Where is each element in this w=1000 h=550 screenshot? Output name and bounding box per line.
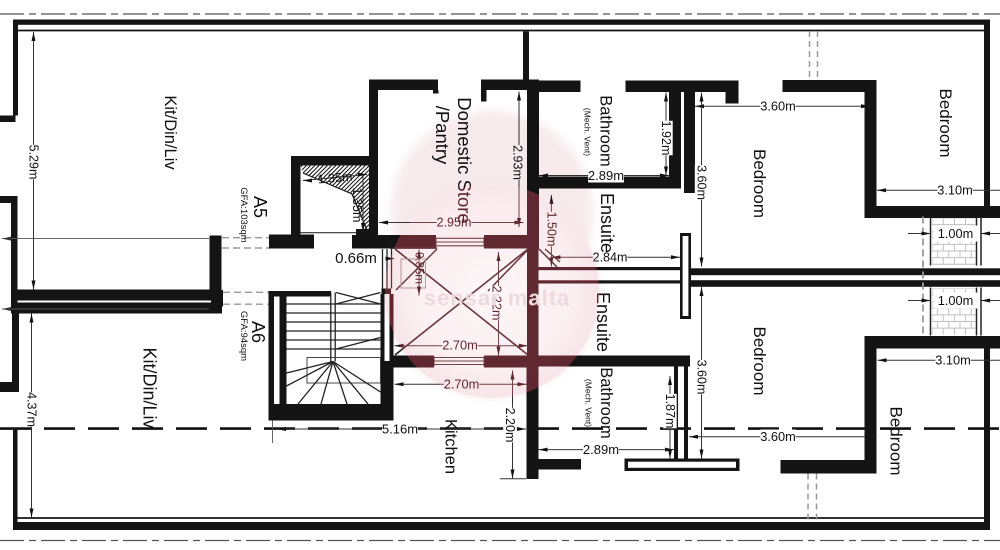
svg-text:1.00m: 1.00m	[938, 293, 974, 308]
svg-text:A6: A6	[248, 321, 268, 343]
svg-text:Kitchen: Kitchen	[442, 419, 460, 474]
svg-text:Bedroom: Bedroom	[750, 327, 769, 396]
svg-text:5.16m: 5.16m	[382, 421, 418, 436]
svg-text:Bedroom: Bedroom	[887, 407, 906, 476]
svg-text:2.89m: 2.89m	[583, 442, 619, 457]
svg-text:Kit/Din/Liv: Kit/Din/Liv	[161, 95, 179, 170]
svg-text:Kit/Din/Liv: Kit/Din/Liv	[140, 347, 160, 428]
svg-text:3.10m: 3.10m	[937, 183, 973, 198]
svg-text:Ensuite: Ensuite	[597, 193, 617, 253]
svg-text:2.89m: 2.89m	[588, 168, 624, 183]
svg-text:(Mech. Vent): (Mech. Vent)	[584, 379, 594, 427]
svg-text:4.37m: 4.37m	[25, 392, 39, 427]
svg-text:Bedroom: Bedroom	[750, 149, 769, 218]
svg-text:Bathroom: Bathroom	[597, 95, 615, 167]
svg-text:3.60m: 3.60m	[695, 165, 709, 200]
svg-text:1.92m: 1.92m	[659, 121, 673, 156]
svg-text:3.60m: 3.60m	[760, 99, 796, 114]
svg-text:(Mech. Vent): (Mech. Vent)	[583, 108, 593, 156]
svg-text:1.00m: 1.00m	[938, 226, 974, 241]
svg-text:0.66m: 0.66m	[335, 250, 377, 267]
svg-text:A5: A5	[250, 196, 270, 218]
svg-text:Bedroom: Bedroom	[936, 89, 955, 158]
svg-text:GFA:103sqm: GFA:103sqm	[238, 187, 249, 243]
svg-text:2.20m: 2.20m	[503, 408, 517, 443]
svg-text:5.29m: 5.29m	[27, 145, 41, 180]
svg-text:1.87m: 1.87m	[663, 394, 677, 429]
svg-text:1.35m: 1.35m	[350, 188, 364, 223]
svg-text:3.60m: 3.60m	[695, 360, 709, 395]
svg-text:GFA:94sqm: GFA:94sqm	[238, 311, 249, 361]
svg-text:sensar malta: sensar malta	[424, 286, 571, 311]
svg-text:3.10m: 3.10m	[935, 353, 971, 368]
svg-text:Bathroom: Bathroom	[597, 367, 615, 439]
svg-text:3.60m: 3.60m	[760, 429, 796, 444]
